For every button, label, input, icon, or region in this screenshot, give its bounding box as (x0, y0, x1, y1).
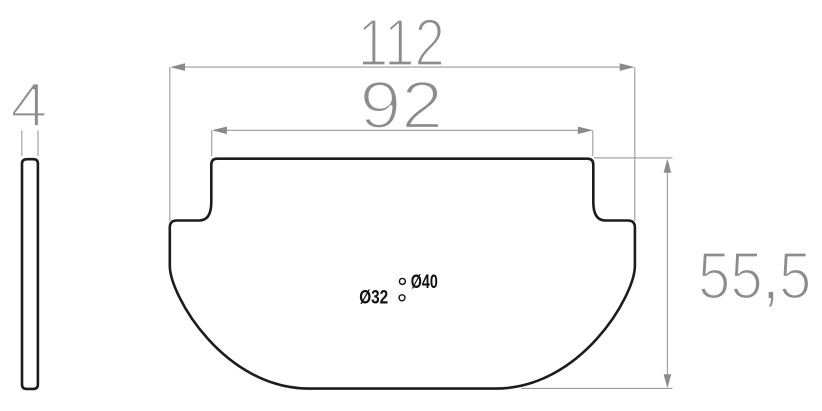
svg-text:55: 55 (698, 238, 763, 313)
svg-text:4: 4 (10, 71, 47, 140)
svg-text:Ø32: Ø32 (359, 288, 388, 309)
svg-text:92: 92 (360, 68, 444, 143)
svg-text:Ø40: Ø40 (411, 272, 438, 293)
svg-text:5: 5 (779, 238, 811, 313)
svg-text:,: , (763, 238, 779, 313)
